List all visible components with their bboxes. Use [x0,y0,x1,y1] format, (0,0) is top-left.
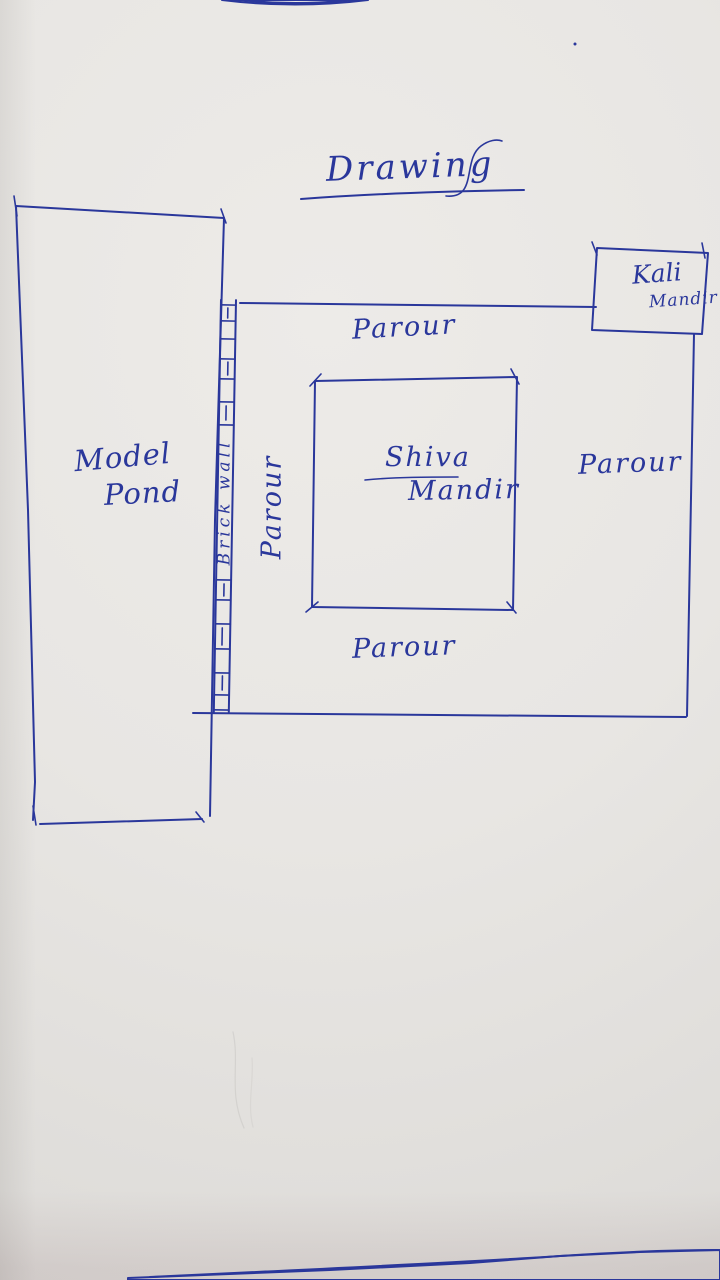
drawing-title: Drawing [325,147,495,187]
kali-mandir-label-line1: Kali [631,259,682,287]
corridor-label-bottom: Parour [352,632,457,663]
ink-speck [574,43,577,46]
table-surface [128,1250,720,1280]
corridor-label-left: Parour [259,455,286,560]
corridor-label-right: Parour [578,448,683,479]
model-pond-label-line2: Pond [103,477,181,510]
corridor-label-top: Parour [351,311,457,343]
paper-crease [233,1032,244,1128]
photographed-paper-sheet: Drawing Parour Parour Parour Parour Bric… [0,0,720,1280]
kali-mandir-label-line2: Mandir [648,290,718,312]
model-pond-label-line1: Model [73,439,172,476]
brick-wall-label: Brick wall [217,439,234,566]
top-edge-object [222,0,368,5]
shiva-mandir-label-line1: Shiva [385,444,471,471]
paper-crease [251,1058,253,1127]
shiva-mandir-label-line2: Mandir [408,476,520,505]
